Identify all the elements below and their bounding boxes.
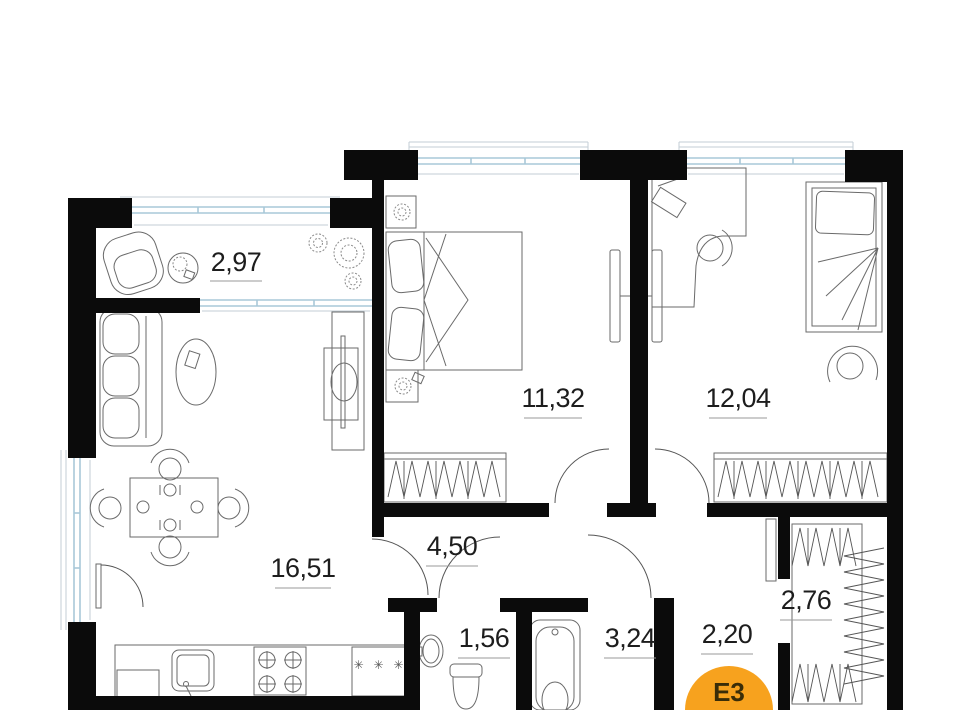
door-bathroom [588,535,651,598]
bathtub [530,620,580,710]
room-label-balcony: 2,97 [211,247,262,277]
floor-plan: ✳ ✳ ✳ [0,0,960,710]
stove [254,647,306,695]
door-wardrobe-leaf [766,519,776,581]
tv-bedroom-2 [648,250,662,342]
room-label-bedroom-2: 12,04 [705,383,771,413]
room-label-wardrobe: 2,76 [781,585,832,615]
floor-plan-page: ✳ ✳ ✳ [0,0,960,710]
coffee-table [176,339,216,405]
window-living-left [61,450,90,630]
wc-basin [417,635,443,667]
room-label-entry: 2,20 [702,619,753,649]
plant [309,234,364,289]
wardrobe-hatch-bedroom-1 [384,453,506,502]
balcony-armchair [99,227,168,299]
sofa [100,308,162,446]
room-label-corridor: 4,50 [427,531,478,561]
room-label-living: 16,51 [270,553,335,583]
window-bedroom-1 [409,142,588,174]
wardrobe-hatch-bedroom-2 [714,453,887,502]
room-label-wc: 1,56 [459,623,510,653]
door-bedroom-1 [555,449,609,503]
nightstand [386,196,424,402]
single-bed [806,182,882,332]
dining-table [130,478,218,537]
tv-bedroom-1 [610,250,630,342]
room-label-bathroom: 3,24 [605,623,656,653]
unit-badge-label: Е3 [713,677,745,707]
fridge: ✳ ✳ ✳ [352,647,406,696]
door-bedroom-2 [655,449,709,503]
kitchen-sink [172,650,214,696]
door-living-corridor [372,539,428,595]
door-balcony-window [96,564,143,608]
desk [652,168,746,307]
unit-badge: Е3 [685,666,773,710]
room-label-bedroom-1: 11,32 [521,383,584,413]
toilet [450,664,482,709]
balcony-glazing [120,197,340,225]
freezer-marks: ✳ ✳ ✳ [354,658,407,672]
window-balcony-living [200,300,372,311]
armchair-bedroom-2 [828,346,878,382]
double-bed [386,232,522,370]
window-bedroom-2 [679,142,853,174]
tv-unit [324,312,364,450]
balcony-table [168,253,198,283]
